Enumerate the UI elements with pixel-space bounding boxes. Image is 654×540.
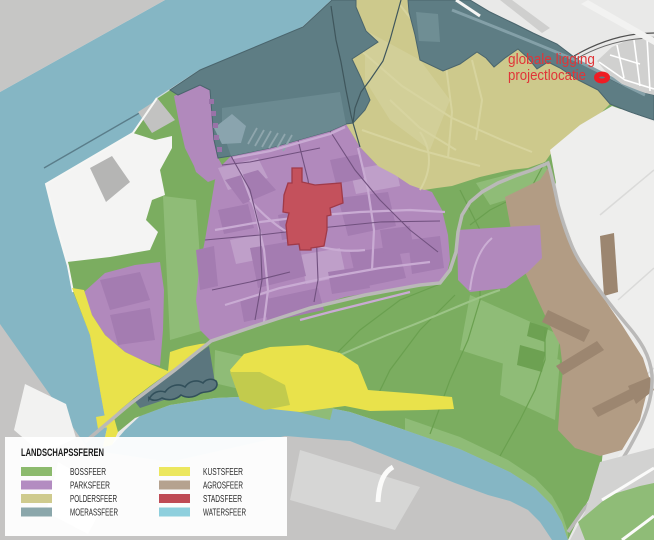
svg-text:PARKSFEER: PARKSFEER [70,481,110,492]
svg-text:POLDERSFEER: POLDERSFEER [70,494,117,505]
svg-text:KUSTSFEER: KUSTSFEER [203,467,243,478]
svg-text:BOSSFEER: BOSSFEER [70,467,106,478]
svg-text:projectlocatie: projectlocatie [508,67,586,84]
svg-text:AGROSFEER: AGROSFEER [203,481,243,492]
svg-text:WATERSFEER: WATERSFEER [203,508,246,519]
svg-text:globale ligging: globale ligging [508,51,595,68]
svg-text:MOERASSFEER: MOERASSFEER [70,508,118,519]
svg-text:LANDSCHAPSSFEREN: LANDSCHAPSSFEREN [21,447,104,459]
svg-text:STADSFEER: STADSFEER [203,494,242,505]
